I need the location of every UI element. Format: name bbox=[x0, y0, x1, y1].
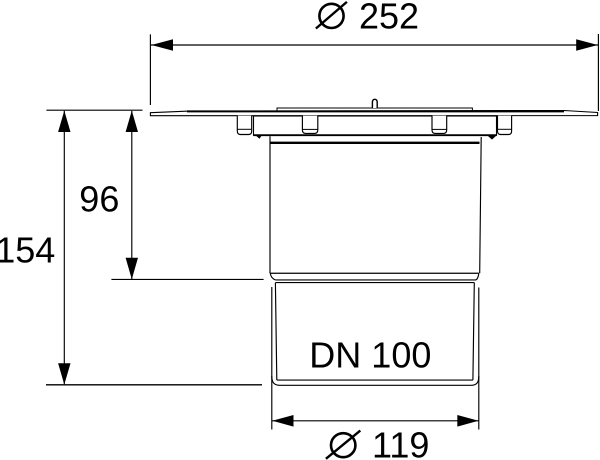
svg-text:252: 252 bbox=[359, 0, 419, 37]
svg-text:DN 100: DN 100 bbox=[309, 334, 431, 375]
svg-text:119: 119 bbox=[372, 424, 429, 460]
svg-text:154: 154 bbox=[0, 230, 55, 271]
svg-text:96: 96 bbox=[79, 178, 119, 219]
